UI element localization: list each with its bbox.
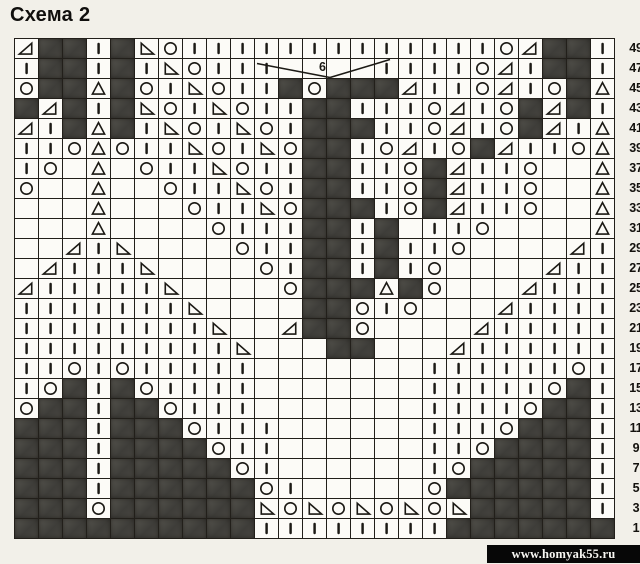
row-number: 35 [618, 178, 640, 198]
knit-bar-cell [87, 359, 111, 379]
shaded-cell [567, 79, 591, 99]
empty-cell [423, 339, 447, 359]
shaded-cell [471, 139, 495, 159]
knit-bar-cell [591, 459, 615, 479]
shaded-cell [135, 459, 159, 479]
shaded-cell [543, 399, 567, 419]
right-decrease-cell [447, 179, 471, 199]
double-decrease-cell [87, 219, 111, 239]
right-decrease-cell [15, 279, 39, 299]
empty-cell [135, 239, 159, 259]
empty-cell [567, 159, 591, 179]
knit-bar-cell [567, 299, 591, 319]
yarn-over-cell [495, 119, 519, 139]
shaded-cell [495, 459, 519, 479]
shaded-cell [183, 479, 207, 499]
empty-cell [375, 319, 399, 339]
shaded-cell [207, 459, 231, 479]
shaded-cell [15, 99, 39, 119]
knit-bar-cell [423, 59, 447, 79]
empty-cell [447, 279, 471, 299]
knit-bar-cell [159, 159, 183, 179]
page-title: Схема 2 [10, 4, 90, 27]
double-decrease-cell [591, 139, 615, 159]
knit-bar-cell [15, 319, 39, 339]
knit-bar-cell [471, 199, 495, 219]
knit-bar-cell [519, 359, 543, 379]
right-decrease-cell [495, 299, 519, 319]
knit-bar-cell [495, 379, 519, 399]
empty-cell [303, 379, 327, 399]
shaded-cell [39, 439, 63, 459]
empty-cell [159, 239, 183, 259]
knit-bar-cell [231, 39, 255, 59]
knit-bar-cell [63, 259, 87, 279]
shaded-cell [111, 59, 135, 79]
row-number: 3 [618, 498, 640, 518]
empty-cell [543, 179, 567, 199]
empty-cell [207, 259, 231, 279]
shaded-cell [135, 519, 159, 539]
empty-cell [255, 399, 279, 419]
double-decrease-cell [591, 179, 615, 199]
right-decrease-cell [543, 99, 567, 119]
empty-cell [303, 399, 327, 419]
row-number: 17 [618, 358, 640, 378]
knit-bar-cell [15, 339, 39, 359]
shaded-cell [207, 499, 231, 519]
knit-bar-cell [495, 399, 519, 419]
knit-bar-cell [423, 399, 447, 419]
right-decrease-cell [543, 259, 567, 279]
empty-cell [351, 359, 375, 379]
knit-bar-cell [351, 39, 375, 59]
knit-bar-cell [87, 339, 111, 359]
shaded-cell [63, 419, 87, 439]
empty-cell [231, 279, 255, 299]
knit-bar-cell [63, 319, 87, 339]
knit-bar-cell [591, 419, 615, 439]
row-number: 5 [618, 478, 640, 498]
yarn-over-cell [159, 39, 183, 59]
knit-bar-cell [183, 339, 207, 359]
knit-bar-cell [567, 319, 591, 339]
yarn-over-cell [471, 59, 495, 79]
shaded-cell [543, 519, 567, 539]
shaded-cell [111, 419, 135, 439]
knit-bar-cell [471, 339, 495, 359]
left-decrease-cell [399, 499, 423, 519]
knit-bar-cell [279, 159, 303, 179]
empty-cell [399, 219, 423, 239]
knit-bar-cell [447, 359, 471, 379]
shaded-cell [303, 199, 327, 219]
knit-bar-cell [135, 279, 159, 299]
knit-bar-cell [591, 319, 615, 339]
knit-bar-cell [375, 519, 399, 539]
yarn-over-cell [15, 79, 39, 99]
knit-bar-cell [87, 59, 111, 79]
knit-bar-cell [423, 219, 447, 239]
empty-cell [255, 299, 279, 319]
knit-bar-cell [15, 59, 39, 79]
empty-cell [471, 279, 495, 299]
yarn-over-cell [207, 139, 231, 159]
row-number: 49 [618, 38, 640, 58]
yarn-over-cell [399, 179, 423, 199]
shaded-cell [63, 499, 87, 519]
double-decrease-cell [591, 219, 615, 239]
knit-bar-cell [567, 119, 591, 139]
knit-bar-cell [351, 519, 375, 539]
empty-cell [279, 299, 303, 319]
yarn-over-cell [279, 279, 303, 299]
left-decrease-cell [303, 499, 327, 519]
yarn-over-cell [423, 499, 447, 519]
knit-bar-cell [423, 459, 447, 479]
knit-bar-cell [471, 379, 495, 399]
shaded-cell [495, 519, 519, 539]
shaded-cell [183, 519, 207, 539]
yarn-over-cell [159, 179, 183, 199]
empty-cell [183, 259, 207, 279]
knit-bar-cell [231, 59, 255, 79]
shaded-cell [135, 499, 159, 519]
double-decrease-cell [591, 199, 615, 219]
empty-cell [39, 219, 63, 239]
empty-cell [279, 359, 303, 379]
shaded-cell [543, 59, 567, 79]
shaded-cell [327, 219, 351, 239]
double-decrease-cell [87, 179, 111, 199]
yarn-over-cell [495, 99, 519, 119]
yarn-over-cell [183, 59, 207, 79]
shaded-cell [327, 299, 351, 319]
knit-bar-cell [519, 379, 543, 399]
empty-cell [15, 199, 39, 219]
yarn-over-cell [207, 439, 231, 459]
knit-bar-cell [543, 319, 567, 339]
empty-cell [399, 339, 423, 359]
yarn-over-cell [39, 159, 63, 179]
knit-bar-cell [279, 519, 303, 539]
row-number: 41 [618, 118, 640, 138]
knit-bar-cell [87, 239, 111, 259]
knit-bar-cell [543, 279, 567, 299]
shaded-cell [543, 439, 567, 459]
knit-bar-cell [279, 239, 303, 259]
empty-cell [447, 259, 471, 279]
knit-bar-cell [207, 59, 231, 79]
yarn-over-cell [15, 179, 39, 199]
knit-bar-cell [183, 399, 207, 419]
knit-bar-cell [351, 99, 375, 119]
knit-bar-cell [111, 319, 135, 339]
knit-bar-cell [159, 79, 183, 99]
shaded-cell [423, 179, 447, 199]
knit-bar-cell [135, 319, 159, 339]
shaded-cell [183, 499, 207, 519]
shaded-cell [63, 519, 87, 539]
knit-bar-cell [207, 199, 231, 219]
yarn-over-cell [375, 499, 399, 519]
shaded-cell [543, 39, 567, 59]
yarn-over-cell [447, 239, 471, 259]
shaded-cell [423, 199, 447, 219]
shaded-cell [567, 499, 591, 519]
shaded-cell [231, 479, 255, 499]
empty-cell [543, 219, 567, 239]
knit-bar-cell [375, 299, 399, 319]
empty-cell [279, 399, 303, 419]
shaded-cell [567, 439, 591, 459]
chart-grid [14, 38, 615, 539]
shaded-cell [543, 419, 567, 439]
empty-cell [351, 459, 375, 479]
knit-bar-cell [591, 479, 615, 499]
shaded-cell [567, 399, 591, 419]
left-decrease-cell [207, 319, 231, 339]
empty-cell [63, 179, 87, 199]
knit-bar-cell [231, 79, 255, 99]
shaded-cell [63, 119, 87, 139]
knit-bar-cell [399, 99, 423, 119]
shaded-cell [135, 399, 159, 419]
knit-bar-cell [423, 379, 447, 399]
knit-bar-cell [591, 59, 615, 79]
row-number: 31 [618, 218, 640, 238]
shaded-cell [111, 459, 135, 479]
shaded-cell [327, 199, 351, 219]
knit-bar-cell [87, 279, 111, 299]
yarn-over-cell [399, 299, 423, 319]
empty-cell [399, 379, 423, 399]
shaded-cell [519, 519, 543, 539]
yarn-over-cell [471, 439, 495, 459]
yarn-over-cell [39, 379, 63, 399]
shaded-cell [15, 519, 39, 539]
empty-cell [543, 159, 567, 179]
shaded-cell [519, 459, 543, 479]
scanned-knitting-chart-page: { "page": { "title": "Схема 2", "waterma… [0, 0, 640, 564]
shaded-cell [63, 399, 87, 419]
knit-bar-cell [519, 79, 543, 99]
knit-bar-cell [423, 359, 447, 379]
yarn-over-cell [279, 139, 303, 159]
yarn-over-cell [207, 79, 231, 99]
knit-bar-cell [279, 39, 303, 59]
empty-cell [231, 299, 255, 319]
yarn-over-cell [183, 419, 207, 439]
right-decrease-cell [495, 79, 519, 99]
empty-cell [303, 459, 327, 479]
yarn-over-cell [63, 359, 87, 379]
knit-bar-cell [159, 319, 183, 339]
shaded-cell [567, 479, 591, 499]
knit-bar-cell [111, 259, 135, 279]
left-decrease-cell [255, 199, 279, 219]
yarn-over-cell [543, 379, 567, 399]
double-decrease-cell [591, 159, 615, 179]
knit-bar-cell [39, 279, 63, 299]
shaded-cell [327, 319, 351, 339]
knit-bar-cell [159, 139, 183, 159]
shaded-cell [159, 479, 183, 499]
row-number: 7 [618, 458, 640, 478]
knit-bar-cell [399, 519, 423, 539]
knit-bar-cell [87, 319, 111, 339]
watermark: www.homyak55.ru [487, 545, 640, 563]
shaded-cell [327, 119, 351, 139]
left-decrease-cell [183, 79, 207, 99]
knit-bar-cell [423, 139, 447, 159]
left-decrease-cell [255, 139, 279, 159]
empty-cell [183, 219, 207, 239]
yarn-over-cell [255, 259, 279, 279]
shaded-cell [327, 279, 351, 299]
right-decrease-cell [519, 279, 543, 299]
yarn-over-cell [159, 99, 183, 119]
knit-bar-cell [87, 99, 111, 119]
shaded-cell [111, 39, 135, 59]
yarn-over-cell [255, 479, 279, 499]
left-decrease-cell [159, 119, 183, 139]
yarn-over-cell [399, 199, 423, 219]
empty-cell [303, 59, 327, 79]
shaded-cell [447, 519, 471, 539]
shaded-cell [303, 139, 327, 159]
knit-bar-cell [159, 379, 183, 399]
shaded-cell [63, 99, 87, 119]
knit-bar-cell [87, 299, 111, 319]
shaded-cell [351, 79, 375, 99]
knit-bar-cell [591, 379, 615, 399]
right-decrease-cell [279, 319, 303, 339]
yarn-over-cell [183, 119, 207, 139]
knit-bar-cell [207, 39, 231, 59]
empty-cell [567, 219, 591, 239]
shaded-cell [519, 439, 543, 459]
shaded-cell [495, 499, 519, 519]
knit-bar-cell [351, 179, 375, 199]
empty-cell [279, 419, 303, 439]
yarn-over-cell [519, 179, 543, 199]
knit-bar-cell [471, 359, 495, 379]
shaded-cell [327, 79, 351, 99]
knit-bar-cell [591, 499, 615, 519]
knit-bar-cell [567, 279, 591, 299]
empty-cell [351, 419, 375, 439]
shaded-cell [87, 519, 111, 539]
yarn-over-cell [567, 139, 591, 159]
empty-cell [351, 379, 375, 399]
knit-bar-cell [495, 159, 519, 179]
knit-bar-cell [207, 359, 231, 379]
knit-bar-cell [471, 419, 495, 439]
empty-cell [519, 239, 543, 259]
knit-bar-cell [15, 299, 39, 319]
empty-cell [15, 219, 39, 239]
knit-bar-cell [591, 279, 615, 299]
empty-cell [207, 239, 231, 259]
left-decrease-cell [231, 119, 255, 139]
double-decrease-cell [87, 159, 111, 179]
empty-cell [495, 279, 519, 299]
shaded-cell [303, 299, 327, 319]
knit-bar-cell [447, 59, 471, 79]
empty-cell [159, 219, 183, 239]
knit-bar-cell [447, 219, 471, 239]
empty-cell [39, 239, 63, 259]
shaded-cell [519, 119, 543, 139]
shaded-cell [327, 179, 351, 199]
double-decrease-cell [591, 79, 615, 99]
empty-cell [135, 179, 159, 199]
knit-bar-cell [303, 519, 327, 539]
left-decrease-cell [207, 99, 231, 119]
left-decrease-cell [183, 299, 207, 319]
empty-cell [111, 179, 135, 199]
empty-cell [327, 439, 351, 459]
row-number: 21 [618, 318, 640, 338]
knit-bar-cell [135, 359, 159, 379]
right-decrease-cell [15, 39, 39, 59]
right-decrease-cell [471, 319, 495, 339]
yarn-over-cell [447, 139, 471, 159]
shaded-cell [39, 399, 63, 419]
knit-bar-cell [279, 119, 303, 139]
knit-bar-cell [207, 179, 231, 199]
knit-bar-cell [375, 39, 399, 59]
knit-bar-cell [399, 59, 423, 79]
knit-bar-cell [351, 259, 375, 279]
empty-cell [159, 199, 183, 219]
shaded-cell [159, 499, 183, 519]
knit-bar-cell [111, 279, 135, 299]
yarn-over-cell [327, 499, 351, 519]
shaded-cell [351, 279, 375, 299]
shaded-cell [111, 519, 135, 539]
yarn-over-cell [423, 479, 447, 499]
row-number: 39 [618, 138, 640, 158]
empty-cell [111, 199, 135, 219]
shaded-cell [303, 159, 327, 179]
knit-bar-cell [183, 159, 207, 179]
shaded-cell [111, 399, 135, 419]
yarn-over-cell [183, 199, 207, 219]
shaded-cell [135, 419, 159, 439]
knit-bar-cell [471, 159, 495, 179]
shaded-cell [15, 479, 39, 499]
knit-bar-cell [351, 239, 375, 259]
empty-cell [63, 159, 87, 179]
shaded-cell [183, 439, 207, 459]
knit-bar-cell [255, 239, 279, 259]
knit-bar-cell [591, 439, 615, 459]
row-number: 43 [618, 98, 640, 118]
empty-cell [351, 439, 375, 459]
knit-bar-cell [39, 339, 63, 359]
knit-bar-cell [351, 139, 375, 159]
yarn-over-cell [519, 399, 543, 419]
empty-cell [375, 479, 399, 499]
empty-cell [495, 259, 519, 279]
empty-cell [279, 379, 303, 399]
knit-bar-cell [183, 359, 207, 379]
empty-cell [351, 399, 375, 419]
shaded-cell [135, 439, 159, 459]
knit-bar-cell [63, 299, 87, 319]
